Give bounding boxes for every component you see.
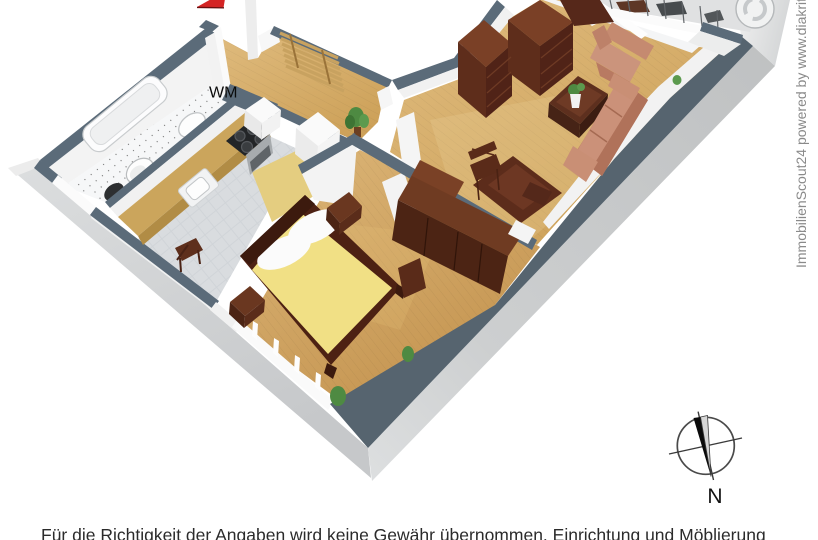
svg-text:Für die Richtigkeit der Angabe: Für die Richtigkeit der Angaben wird kei…: [41, 525, 766, 540]
svg-text:ImmobilienScout24 powered by w: ImmobilienScout24 powered by www.diakrit…: [793, 0, 809, 268]
svg-text:WM: WM: [209, 85, 237, 102]
svg-text:N: N: [707, 485, 722, 508]
